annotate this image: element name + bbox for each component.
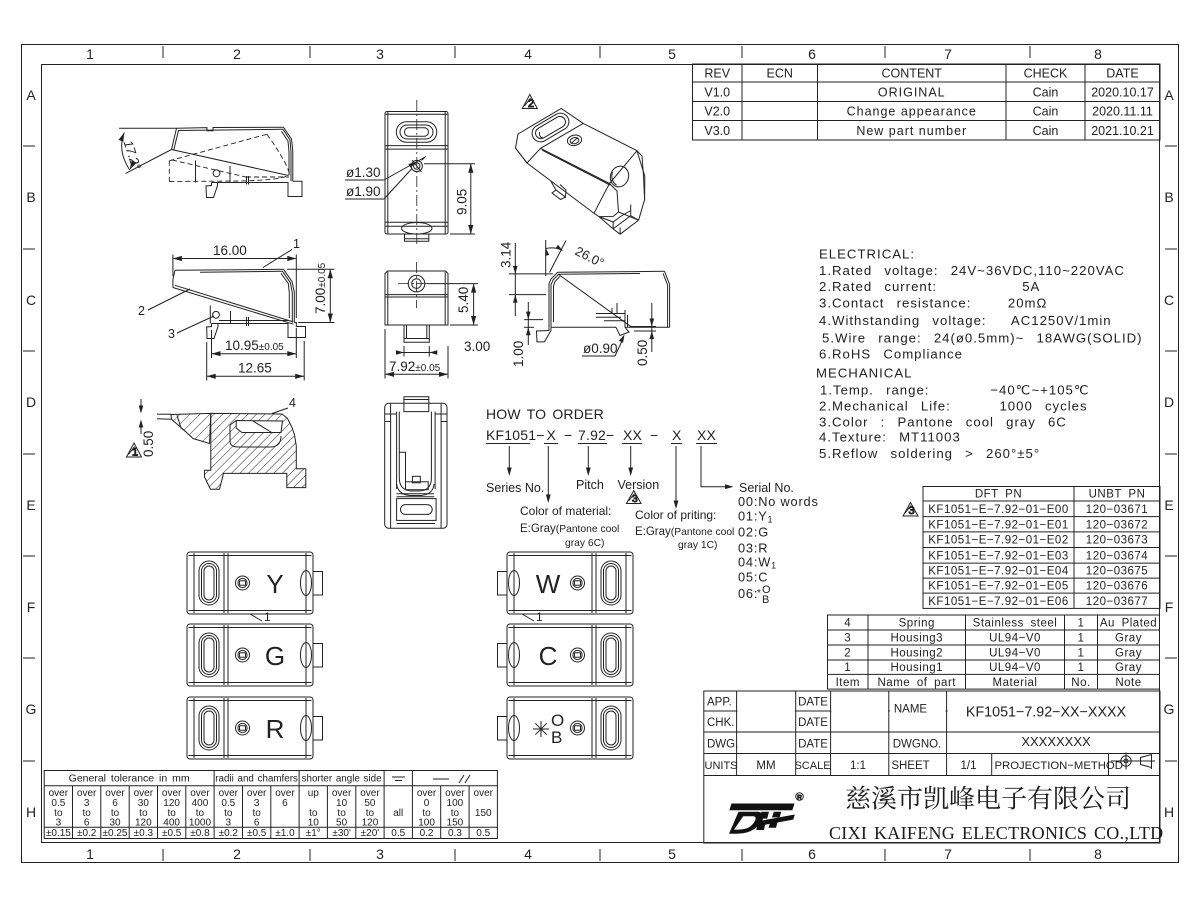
svg-text:Color of material:: Color of material: <box>520 504 611 518</box>
svg-text:1: 1 <box>1078 633 1085 645</box>
svg-text:03:R: 03:R <box>738 541 768 556</box>
svg-text:4.Withstanding voltage: AC125: 4.Withstanding voltage: AC1250V/1min <box>819 313 1112 328</box>
svg-text:XX: XX <box>623 427 643 443</box>
svg-text:5: 5 <box>668 846 676 862</box>
svg-text:ø1.30: ø1.30 <box>346 165 381 180</box>
svg-text:1: 1 <box>844 662 851 674</box>
svg-text:SCALE: SCALE <box>794 760 830 772</box>
svg-text:1.Temp. range: −40℃~+105℃: 1.Temp. range: −40℃~+105℃ <box>820 383 1090 398</box>
svg-text:Au Plated: Au Plated <box>1100 618 1157 630</box>
svg-text:No.: No. <box>1071 677 1090 689</box>
svg-text:V3.0: V3.0 <box>704 124 730 138</box>
svg-text:H: H <box>1164 804 1174 820</box>
svg-text:12.65: 12.65 <box>238 361 272 376</box>
svg-text:E: E <box>1164 497 1173 513</box>
svg-text:120−03677: 120−03677 <box>1086 596 1148 608</box>
svg-text:ELECTRICAL:: ELECTRICAL: <box>819 247 915 262</box>
svg-text:2: 2 <box>233 846 241 862</box>
svg-text:Stainless steel: Stainless steel <box>973 618 1058 630</box>
svg-text:Gray: Gray <box>1115 633 1142 645</box>
svg-text:KF1051−E−7.92−01−E00: KF1051−E−7.92−01−E00 <box>928 504 1068 516</box>
svg-text:DWG.: DWG. <box>707 738 738 750</box>
svg-text:Serial No.: Serial No. <box>739 481 794 495</box>
svg-text:DFT PN: DFT PN <box>975 489 1022 501</box>
svg-text:DATE: DATE <box>798 697 828 709</box>
svg-text:3: 3 <box>226 818 232 829</box>
svg-text:120−03673: 120−03673 <box>1086 535 1148 547</box>
svg-text:120−03676: 120−03676 <box>1086 581 1148 593</box>
svg-text:7: 7 <box>944 846 952 862</box>
svg-text:Housing1: Housing1 <box>890 662 943 674</box>
svg-text:E:Gray(Pantone cool: E:Gray(Pantone cool <box>520 523 619 535</box>
svg-text:over: over <box>474 788 494 799</box>
svg-text:G: G <box>1164 701 1175 717</box>
svg-text:D: D <box>26 394 36 410</box>
svg-text:100: 100 <box>418 818 435 829</box>
svg-text:0.3: 0.3 <box>448 828 462 839</box>
svg-text:X: X <box>547 427 557 443</box>
svg-text:±0.5: ±0.5 <box>247 828 267 839</box>
svg-text:C: C <box>1164 292 1174 308</box>
svg-text:±1.0: ±1.0 <box>275 828 295 839</box>
svg-text:KF1051−: KF1051− <box>486 427 545 443</box>
svg-text:400: 400 <box>163 818 180 829</box>
svg-text:APP.: APP. <box>707 697 732 709</box>
svg-text:C: C <box>539 641 558 671</box>
svg-text:120−03672: 120−03672 <box>1086 519 1148 531</box>
svg-text:−: − <box>564 427 572 443</box>
svg-text:±0.2: ±0.2 <box>77 828 97 839</box>
svg-text:2: 2 <box>233 46 241 62</box>
svg-text:ø0.90: ø0.90 <box>583 341 618 356</box>
svg-text:0.2: 0.2 <box>420 828 434 839</box>
svg-text:XX: XX <box>697 427 717 443</box>
svg-text:MM: MM <box>756 760 775 772</box>
svg-text:Change appearance: Change appearance <box>847 105 977 119</box>
svg-text:±0.8: ±0.8 <box>190 828 210 839</box>
svg-text:4: 4 <box>524 846 532 862</box>
svg-text:ø1.90: ø1.90 <box>346 184 381 199</box>
svg-text:Cain: Cain <box>1033 105 1059 119</box>
svg-text:1:1: 1:1 <box>850 760 866 772</box>
svg-text:120: 120 <box>362 818 379 829</box>
svg-text:HOW TO ORDER: HOW TO ORDER <box>486 406 604 422</box>
svg-text:6: 6 <box>282 798 288 809</box>
svg-text:1: 1 <box>1078 618 1085 630</box>
svg-text:Note: Note <box>1115 677 1141 689</box>
svg-text:1000: 1000 <box>189 818 212 829</box>
svg-text:ECN: ECN <box>767 67 793 81</box>
svg-text:REV: REV <box>704 67 730 81</box>
svg-text:5.Reflow soldering > 260°±5°: 5.Reflow soldering > 260°±5° <box>819 446 1040 461</box>
svg-text:New part number: New part number <box>856 124 967 138</box>
svg-text:all: all <box>393 808 403 819</box>
svg-text:A: A <box>26 87 36 103</box>
svg-text:0.5: 0.5 <box>476 828 490 839</box>
svg-text:120: 120 <box>135 818 152 829</box>
svg-text:shorter angle side: shorter angle side <box>302 774 382 785</box>
svg-text:±0.2: ±0.2 <box>219 828 239 839</box>
svg-text:±0.15: ±0.15 <box>46 828 71 839</box>
svg-text:UL94−V0: UL94−V0 <box>989 648 1041 660</box>
svg-text:Gray: Gray <box>1115 648 1142 660</box>
svg-text:7: 7 <box>944 46 952 62</box>
svg-text:06:: 06: <box>738 586 758 601</box>
svg-text:120−03675: 120−03675 <box>1086 566 1148 578</box>
svg-text:±0.5: ±0.5 <box>162 828 182 839</box>
svg-text:Material: Material <box>993 677 1038 689</box>
svg-text:DATE: DATE <box>798 717 828 729</box>
svg-text:−: − <box>650 427 658 443</box>
svg-text:CHK.: CHK. <box>707 717 734 729</box>
svg-text:0.5: 0.5 <box>391 828 405 839</box>
svg-text:1: 1 <box>264 610 271 624</box>
svg-text:NAME: NAME <box>894 704 928 716</box>
svg-text:ORIGINAL: ORIGINAL <box>878 85 946 99</box>
svg-text:Y: Y <box>266 569 283 599</box>
svg-text:02:G: 02:G <box>738 525 769 540</box>
svg-text:4.Texture: MT11003: 4.Texture: MT11003 <box>819 430 961 445</box>
svg-text:3.00: 3.00 <box>464 339 490 354</box>
svg-text:50: 50 <box>336 818 348 829</box>
svg-text:gray 1C): gray 1C) <box>678 540 717 551</box>
svg-text:1: 1 <box>1078 662 1085 674</box>
svg-text:1.00: 1.00 <box>511 341 526 367</box>
svg-text:Color of priting:: Color of priting: <box>635 508 716 522</box>
svg-text:MECHANICAL: MECHANICAL <box>816 366 912 381</box>
svg-text:6: 6 <box>808 846 816 862</box>
svg-text:PROJECTION−METHOD: PROJECTION−METHOD <box>995 760 1123 772</box>
svg-text:±30': ±30' <box>332 828 351 839</box>
svg-text:DATE: DATE <box>798 738 828 750</box>
svg-text:V1.0: V1.0 <box>704 85 730 99</box>
svg-text:B: B <box>762 594 770 606</box>
svg-text:Housing3: Housing3 <box>890 633 943 645</box>
svg-text:G: G <box>26 701 37 717</box>
svg-text:2.Rated current: 5A: 2.Rated current: 5A <box>819 279 1040 294</box>
svg-text:Pitch: Pitch <box>576 478 604 492</box>
svg-text:1.Rated voltage: 24V~36VDC,110: 1.Rated voltage: 24V~36VDC,110~220VAC <box>819 263 1125 278</box>
svg-text:120−03671: 120−03671 <box>1086 504 1148 516</box>
svg-text:10: 10 <box>308 818 320 829</box>
svg-text:8: 8 <box>1094 46 1102 62</box>
svg-text:UL94−V0: UL94−V0 <box>989 633 1041 645</box>
svg-text:gray 6C): gray 6C) <box>565 538 604 549</box>
svg-text:04:W1: 04:W1 <box>738 555 777 571</box>
svg-text:Spring: Spring <box>899 618 935 630</box>
svg-text:5.Wire range: 24(ø0.5mm)~ 18AW: 5.Wire range: 24(ø0.5mm)~ 18AWG(SOLID) <box>822 331 1143 346</box>
svg-text:3: 3 <box>376 46 384 62</box>
svg-text:8: 8 <box>1094 846 1102 862</box>
svg-text:0.50: 0.50 <box>141 431 156 457</box>
svg-text:*: * <box>757 588 762 599</box>
svg-text:0.50: 0.50 <box>635 340 650 366</box>
svg-text:7.92−: 7.92− <box>578 427 614 443</box>
svg-text:6: 6 <box>254 818 260 829</box>
svg-text:F: F <box>27 599 36 615</box>
svg-text:±0.25: ±0.25 <box>103 828 128 839</box>
svg-text:UNITS: UNITS <box>705 760 738 772</box>
svg-text:3: 3 <box>844 633 851 645</box>
svg-text:KF1051−E−7.92−01−E02: KF1051−E−7.92−01−E02 <box>928 535 1068 547</box>
svg-text:05:C: 05:C <box>738 570 768 585</box>
svg-text:150: 150 <box>475 808 492 819</box>
svg-text:B: B <box>1164 189 1173 205</box>
svg-text:Housing2: Housing2 <box>890 648 943 660</box>
svg-text:1: 1 <box>86 846 94 862</box>
svg-text:150: 150 <box>447 818 464 829</box>
svg-text:2.Mechanical Life: 1000 cyc: 2.Mechanical Life: 1000 cycles <box>819 399 1088 414</box>
svg-text:4: 4 <box>289 396 296 410</box>
svg-text:3.Color : Pantone cool gray 6C: 3.Color : Pantone cool gray 6C <box>819 415 1067 430</box>
svg-text:±1°: ±1° <box>306 828 321 839</box>
svg-text:±0.3: ±0.3 <box>134 828 154 839</box>
svg-text:KF1051−E−7.92−01−E04: KF1051−E−7.92−01−E04 <box>928 566 1069 578</box>
svg-text:F: F <box>1165 599 1174 615</box>
svg-text:E:Gray(Pantone cool: E:Gray(Pantone cool <box>635 526 734 538</box>
svg-text:9.05: 9.05 <box>455 189 470 215</box>
svg-text:radii and chamfers: radii and chamfers <box>215 774 298 785</box>
svg-text:B: B <box>551 728 562 747</box>
svg-text:6.RoHS Compliance: 6.RoHS Compliance <box>819 347 963 362</box>
svg-text:up: up <box>308 788 320 799</box>
svg-text:00:No words: 00:No words <box>738 494 819 509</box>
svg-text:2020.10.17: 2020.10.17 <box>1091 85 1154 99</box>
svg-text:±20': ±20' <box>361 828 380 839</box>
svg-text:CHECK: CHECK <box>1024 67 1068 81</box>
svg-text:5.40: 5.40 <box>456 287 471 313</box>
svg-text:KF1051−E−7.92−01−E05: KF1051−E−7.92−01−E05 <box>928 581 1068 593</box>
svg-text:KF1051−7.92−XX−XXXX: KF1051−7.92−XX−XXXX <box>966 705 1127 721</box>
svg-text:KF1051−E−7.92−01−E03: KF1051−E−7.92−01−E03 <box>928 550 1068 562</box>
svg-text:1: 1 <box>293 237 300 251</box>
svg-text:2: 2 <box>138 304 145 318</box>
svg-text:3.14: 3.14 <box>499 241 514 268</box>
svg-text:R: R <box>797 795 802 802</box>
svg-text:KF1051−E−7.92−01−E01: KF1051−E−7.92−01−E01 <box>928 519 1068 531</box>
svg-text:Name of part: Name of part <box>878 677 957 689</box>
svg-text:XXXXXXXX: XXXXXXXX <box>1021 734 1091 749</box>
svg-text:R: R <box>266 714 285 744</box>
svg-text:1/1: 1/1 <box>961 760 977 772</box>
svg-text:E: E <box>26 497 35 513</box>
svg-text:CONTENT: CONTENT <box>882 67 943 81</box>
svg-text:2020.11.11: 2020.11.11 <box>1092 105 1153 119</box>
svg-text:3: 3 <box>376 846 384 862</box>
svg-text:6: 6 <box>84 818 90 829</box>
svg-text:Version: Version <box>618 478 660 492</box>
svg-text:1: 1 <box>86 46 94 62</box>
svg-text:DATE: DATE <box>1106 67 1138 81</box>
svg-text:G: G <box>265 641 285 671</box>
svg-text:3: 3 <box>56 818 62 829</box>
svg-text:3: 3 <box>168 327 175 341</box>
svg-text:6: 6 <box>808 46 816 62</box>
svg-text:CIXI KAIFENG ELECTRONICS CO.,L: CIXI KAIFENG ELECTRONICS CO.,LTD <box>829 823 1163 843</box>
svg-text:D: D <box>1164 394 1174 410</box>
svg-text:1: 1 <box>1078 648 1085 660</box>
svg-text:16.00: 16.00 <box>213 243 247 258</box>
svg-text:KF1051−E−7.92−01−E06: KF1051−E−7.92−01−E06 <box>928 596 1068 608</box>
svg-text:A: A <box>1164 87 1174 103</box>
svg-text:B: B <box>26 189 35 205</box>
svg-text:H: H <box>26 804 36 820</box>
svg-text:SHEET: SHEET <box>891 760 929 772</box>
svg-text:4: 4 <box>844 618 851 630</box>
svg-text:UL94−V0: UL94−V0 <box>989 662 1041 674</box>
svg-text:3.Contact resistance: 20mΩ: 3.Contact resistance: 20mΩ <box>819 296 1047 311</box>
svg-text:X: X <box>672 427 682 443</box>
svg-text:Item: Item <box>836 677 860 689</box>
svg-text:2021.10.21: 2021.10.21 <box>1091 124 1154 138</box>
svg-text:3: 3 <box>632 493 638 505</box>
svg-text:General tolerance in mm: General tolerance in mm <box>69 773 190 785</box>
svg-text:120−03674: 120−03674 <box>1086 550 1148 562</box>
svg-text:W: W <box>536 569 561 599</box>
svg-text:Series No.: Series No. <box>486 481 544 495</box>
svg-text:5: 5 <box>668 46 676 62</box>
svg-text:V2.0: V2.0 <box>704 105 730 119</box>
svg-text:2: 2 <box>844 648 851 660</box>
svg-text:1: 1 <box>536 610 543 624</box>
svg-text:Gray: Gray <box>1115 662 1142 674</box>
svg-text:Cain: Cain <box>1033 124 1059 138</box>
svg-text:Cain: Cain <box>1033 85 1059 99</box>
svg-text:DWGNO.: DWGNO. <box>893 738 942 750</box>
svg-text:UNBT PN: UNBT PN <box>1089 489 1146 501</box>
svg-text:4: 4 <box>524 46 532 62</box>
svg-text:C: C <box>26 292 36 308</box>
svg-text:30: 30 <box>109 818 121 829</box>
